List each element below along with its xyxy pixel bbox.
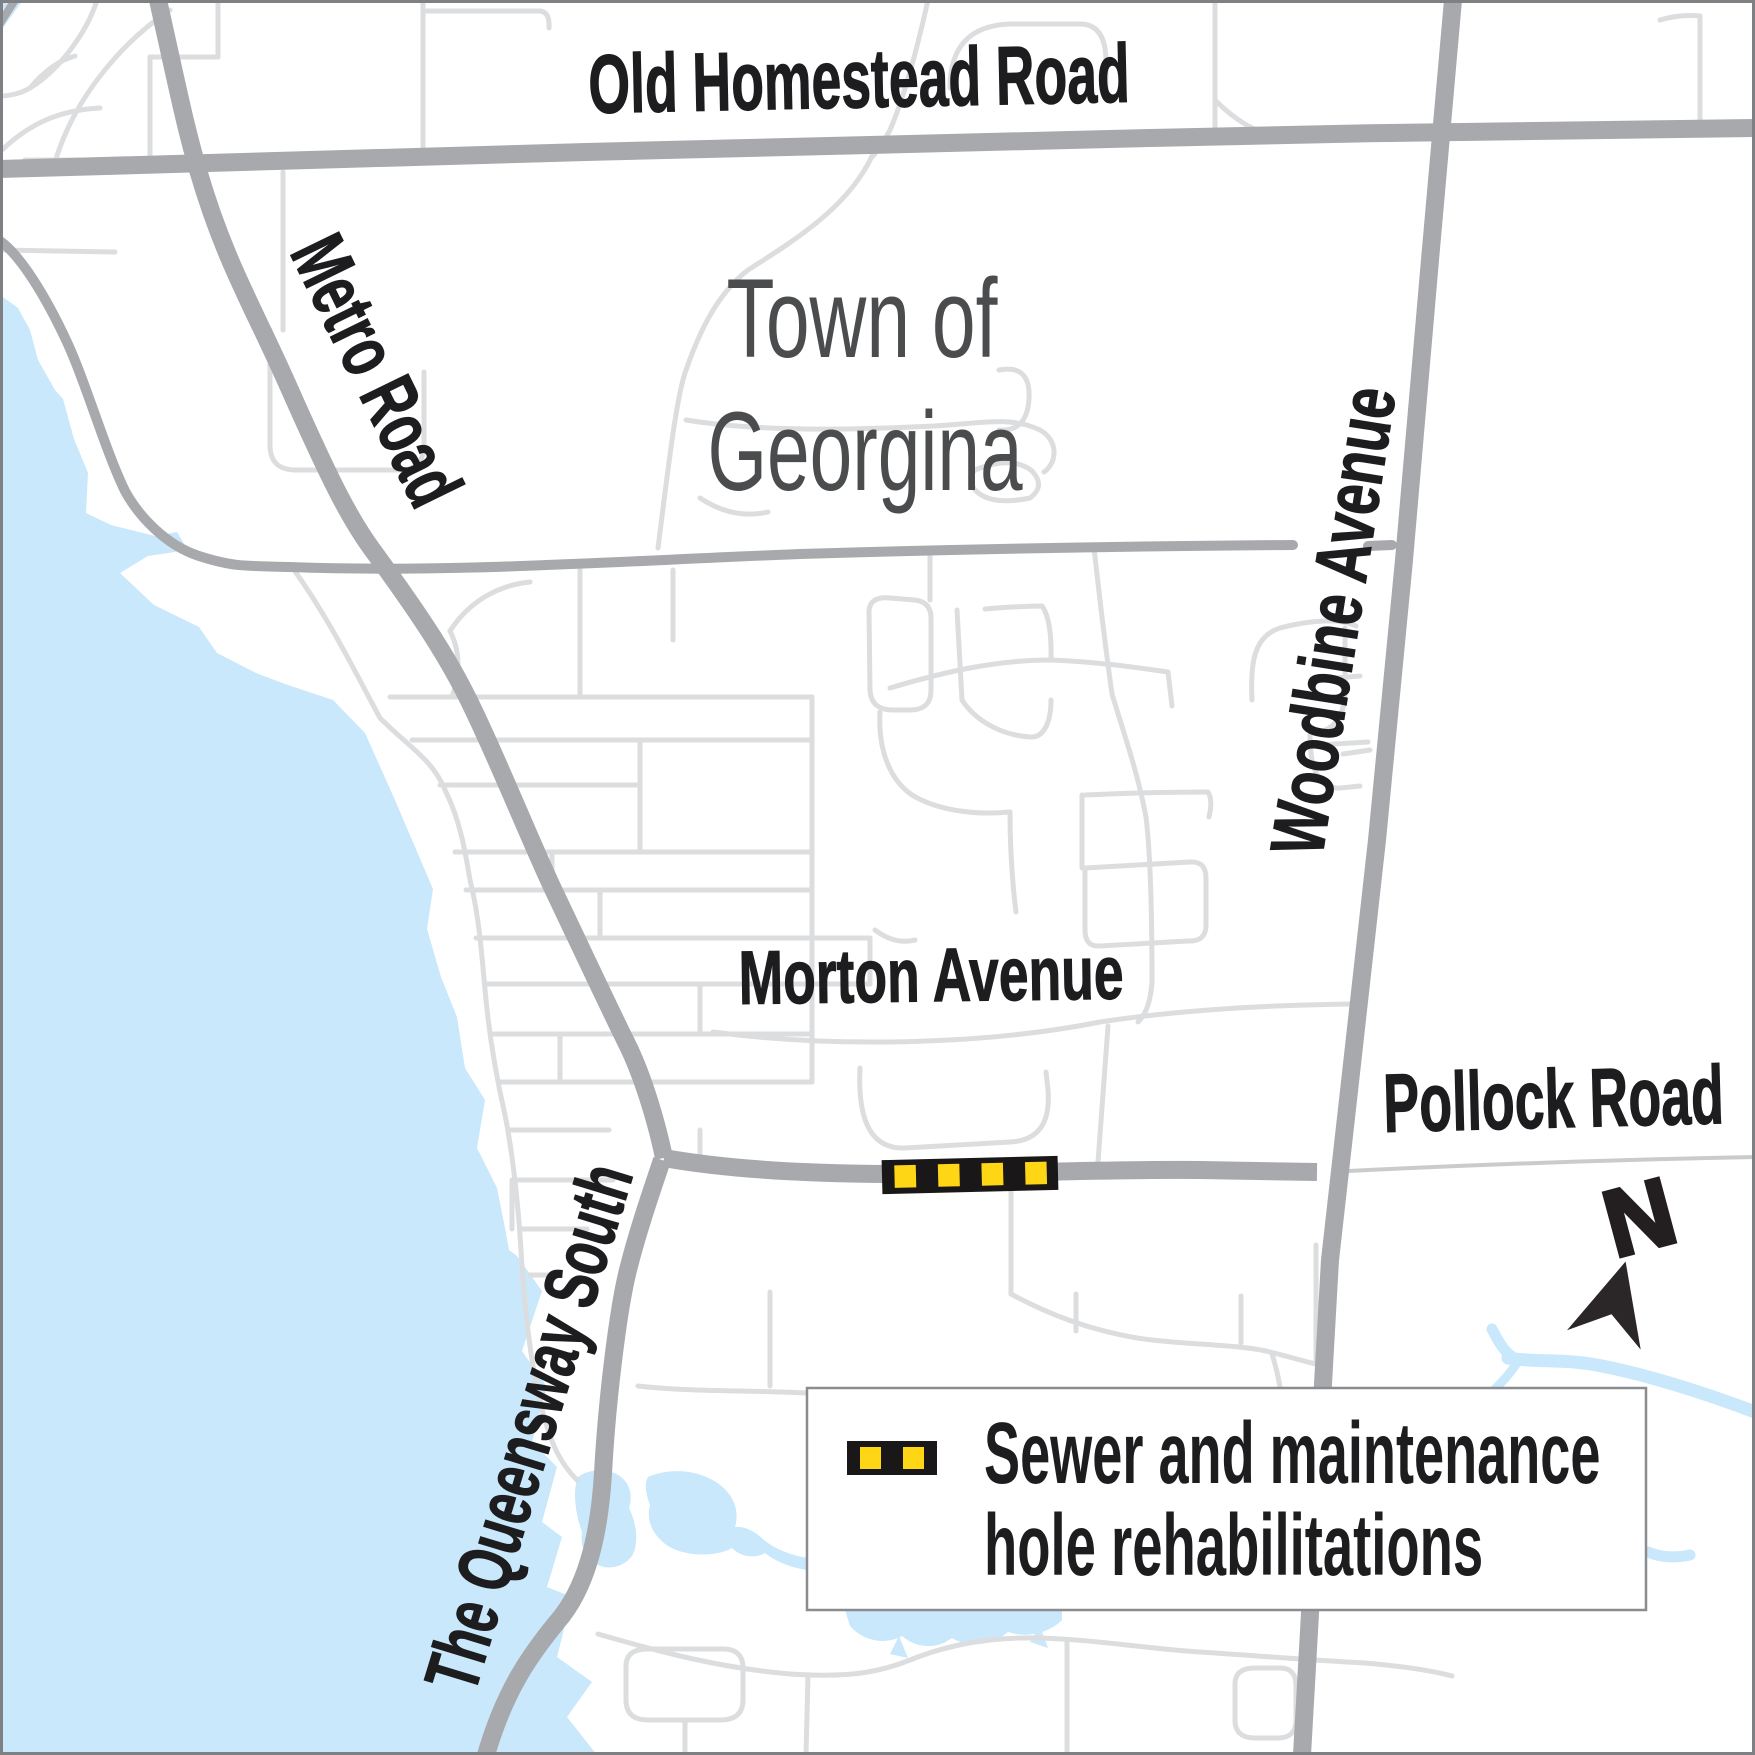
svg-text:Town of: Town of bbox=[727, 255, 999, 381]
svg-text:hole rehabilitations: hole rehabilitations bbox=[984, 1497, 1483, 1594]
svg-text:Old Homestead Road: Old Homestead Road bbox=[587, 27, 1130, 131]
svg-text:Pollock Road: Pollock Road bbox=[1382, 1048, 1725, 1149]
svg-text:Sewer and maintenance: Sewer and maintenance bbox=[984, 1405, 1600, 1502]
svg-text:Morton Avenue: Morton Avenue bbox=[738, 930, 1124, 1020]
svg-text:Georgina: Georgina bbox=[707, 390, 1023, 515]
